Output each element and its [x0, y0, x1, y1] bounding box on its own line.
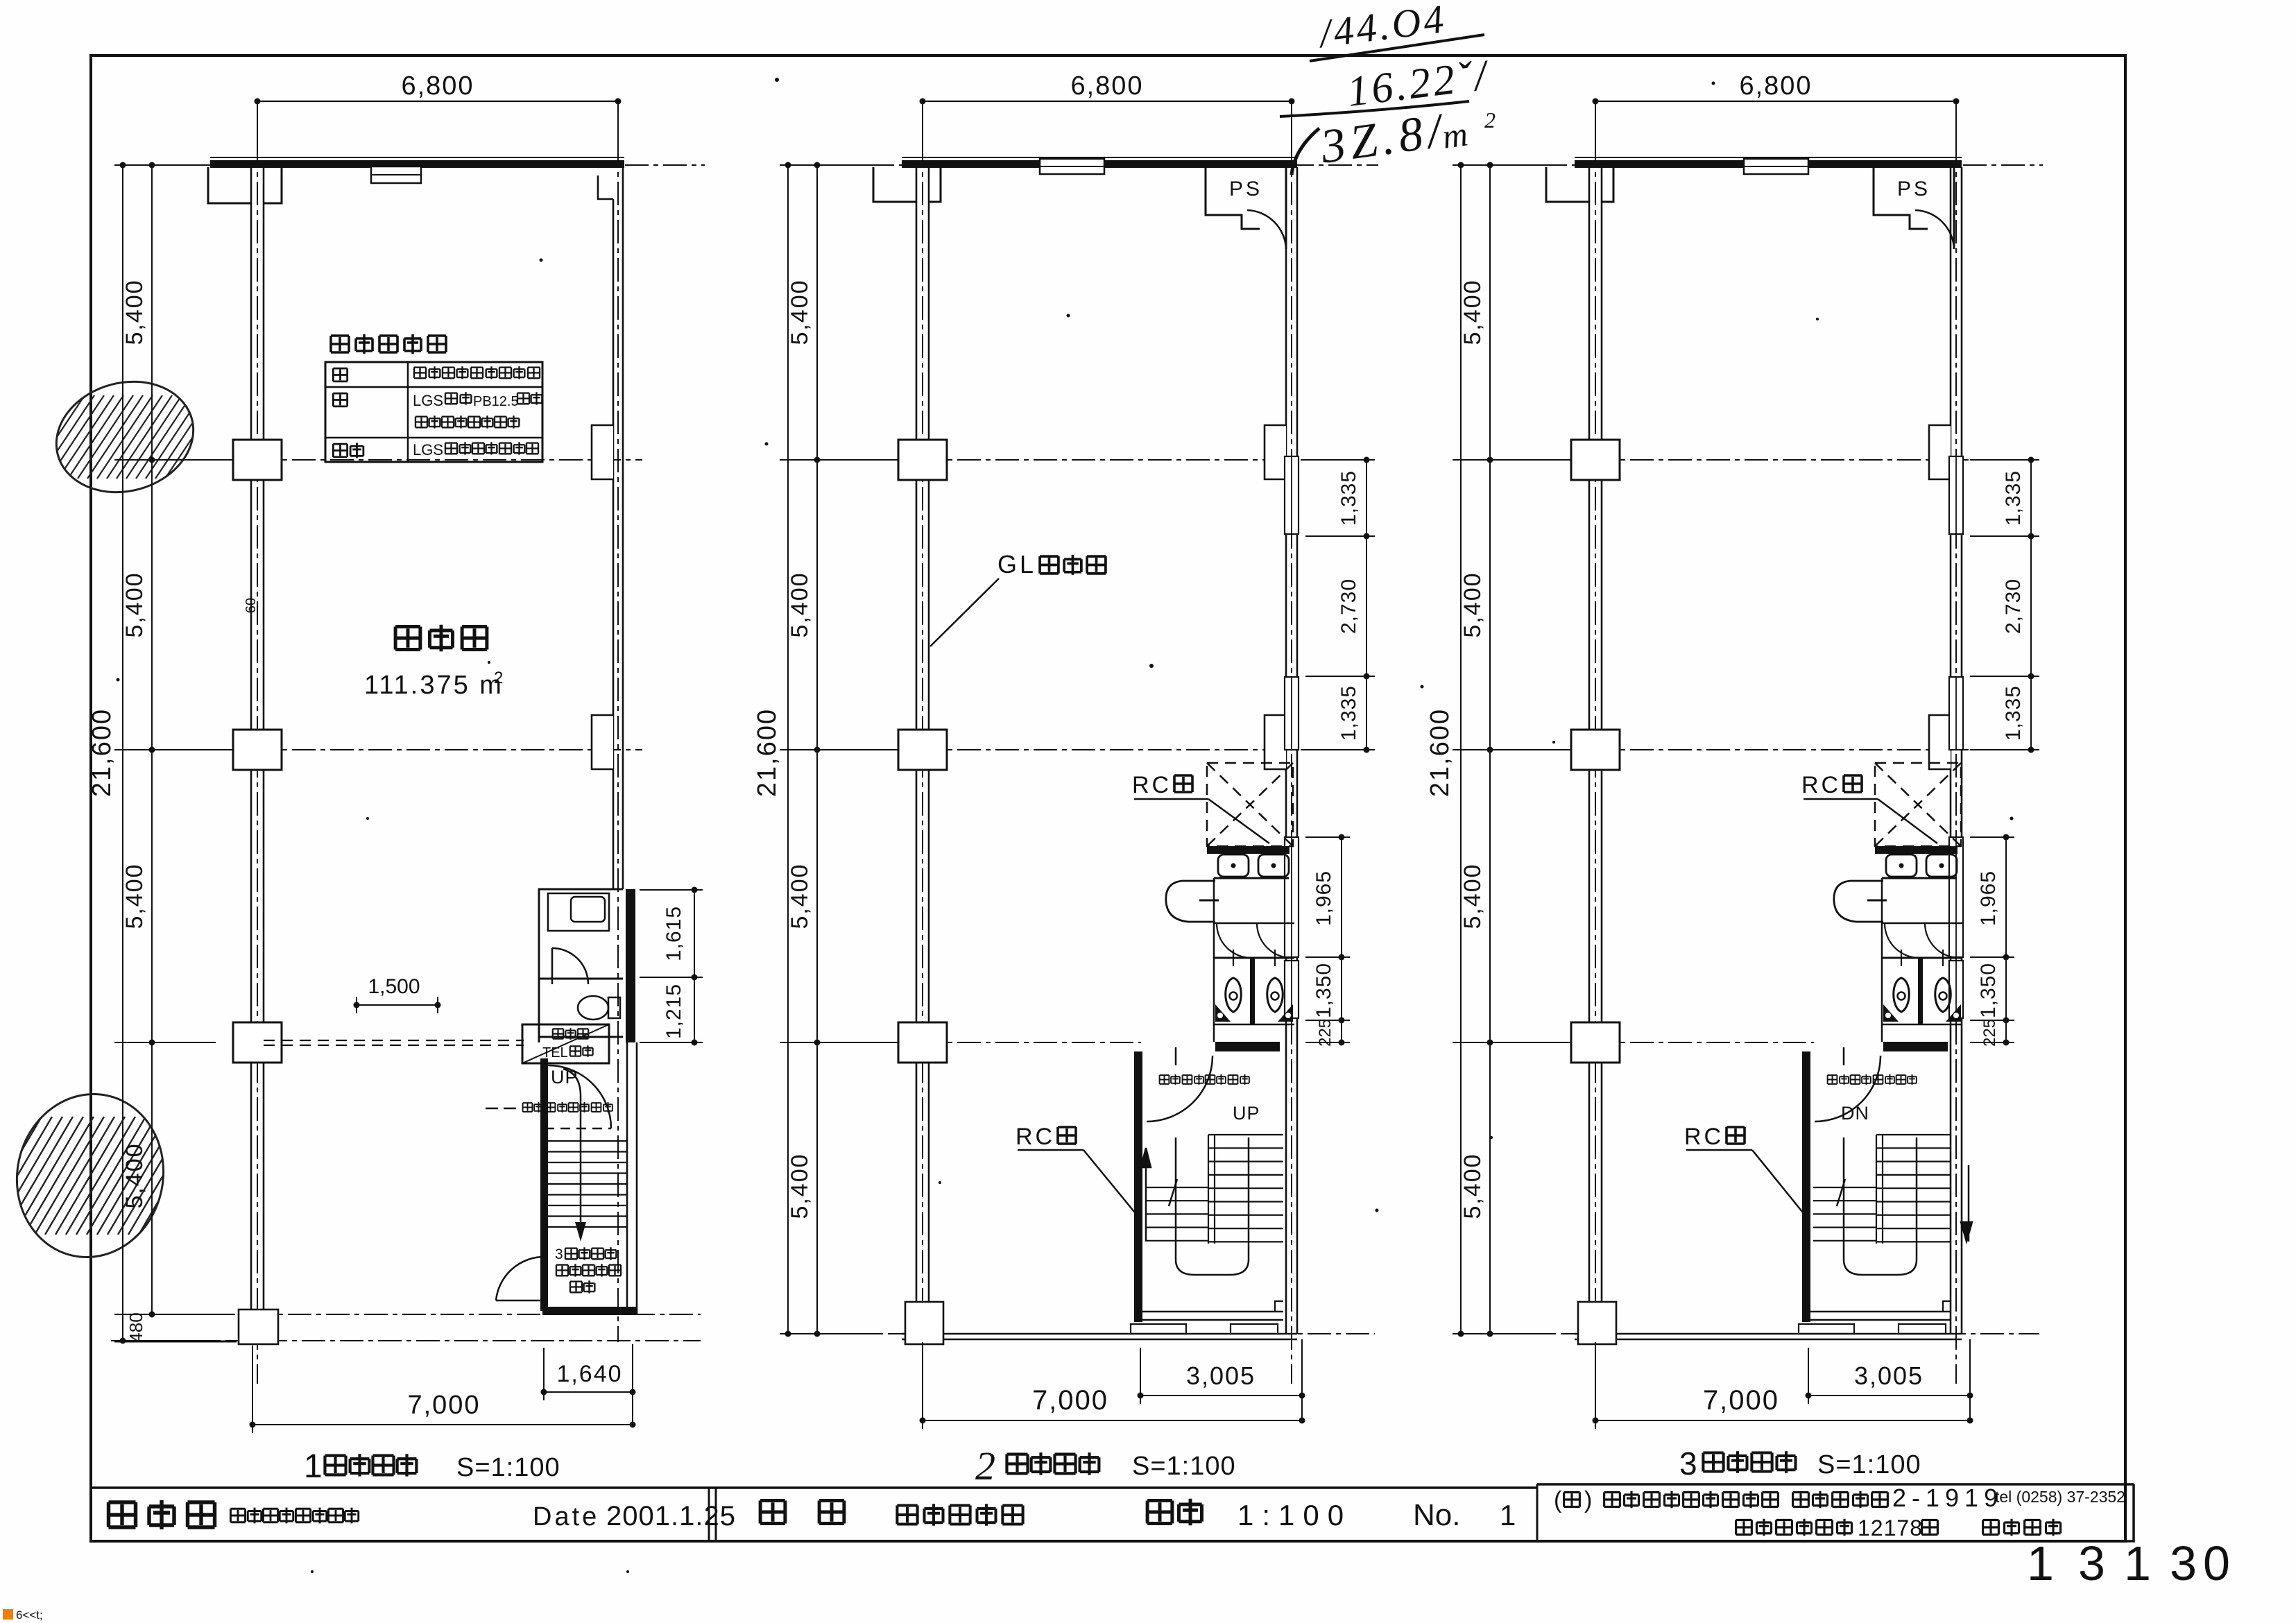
svg-text:21,600: 21,600 — [1425, 708, 1455, 797]
svg-text:TEL: TEL — [542, 1045, 568, 1060]
svg-text:21,600: 21,600 — [753, 708, 782, 797]
svg-text:6<<t;: 6<<t; — [16, 1608, 43, 1622]
svg-text:1,335: 1,335 — [1337, 685, 1360, 741]
svg-text:1: 1 — [304, 1448, 323, 1485]
svg-text:5,400: 5,400 — [787, 863, 813, 929]
svg-text:2: 2 — [975, 1443, 995, 1488]
svg-text:2: 2 — [494, 669, 503, 687]
svg-text:LGS: LGS — [413, 392, 443, 409]
svg-text:5,400: 5,400 — [787, 279, 813, 345]
svg-text:1,335: 1,335 — [1337, 470, 1360, 526]
svg-text:GL: GL — [997, 550, 1036, 578]
svg-text:): ) — [1584, 1487, 1592, 1513]
svg-text:PS: PS — [1897, 178, 1930, 200]
svg-text:2-1919: 2-1919 — [1892, 1484, 2003, 1512]
svg-text:1,350: 1,350 — [1977, 963, 2000, 1018]
svg-text:1,350: 1,350 — [1312, 963, 1335, 1018]
svg-text:3,005: 3,005 — [1186, 1362, 1256, 1390]
svg-text:RC: RC — [1684, 1124, 1724, 1150]
svg-text:225: 225 — [1316, 1019, 1335, 1047]
svg-text:UP: UP — [1233, 1103, 1260, 1124]
svg-text:S=1:100: S=1:100 — [1132, 1452, 1236, 1481]
svg-text:12178: 12178 — [1858, 1515, 1923, 1540]
svg-text:No.: No. — [1413, 1498, 1460, 1532]
svg-text:1,640: 1,640 — [556, 1361, 622, 1387]
svg-text:5,400: 5,400 — [787, 572, 813, 637]
svg-text:1,215: 1,215 — [662, 984, 685, 1039]
svg-text:(: ( — [1554, 1487, 1562, 1513]
svg-text:1,965: 1,965 — [1977, 870, 2000, 926]
svg-text:1,615: 1,615 — [662, 906, 685, 961]
svg-text:111.375 m: 111.375 m — [364, 671, 504, 700]
svg-text:7,000: 7,000 — [1703, 1385, 1779, 1416]
svg-text:S=1:100: S=1:100 — [1817, 1450, 1921, 1479]
svg-text:1: 1 — [1500, 1499, 1516, 1531]
svg-text:480: 480 — [126, 1312, 146, 1342]
svg-text:1: 1 — [2124, 1536, 2151, 1590]
svg-text:1: 1 — [2027, 1536, 2054, 1590]
svg-text:60: 60 — [243, 598, 259, 613]
svg-text:5,400: 5,400 — [1459, 1153, 1486, 1219]
svg-text:21,600: 21,600 — [87, 708, 117, 797]
svg-text:3: 3 — [2078, 1536, 2105, 1590]
svg-text:3: 3 — [1679, 1445, 1697, 1482]
svg-text:LGS: LGS — [413, 441, 443, 458]
svg-text:1:100: 1:100 — [1237, 1499, 1352, 1531]
svg-text:1,965: 1,965 — [1312, 870, 1335, 926]
svg-text:5,400: 5,400 — [1459, 863, 1486, 929]
svg-text:PB12.5: PB12.5 — [473, 394, 519, 409]
svg-text:0: 0 — [2203, 1536, 2230, 1590]
svg-text:PS: PS — [1229, 178, 1262, 200]
svg-text:1,500: 1,500 — [368, 975, 420, 998]
svg-text:6,800: 6,800 — [1739, 71, 1812, 101]
svg-text:5,400: 5,400 — [121, 863, 148, 929]
svg-text:2,730: 2,730 — [2002, 578, 2025, 634]
svg-text:5,400: 5,400 — [121, 279, 148, 345]
svg-text:5,400: 5,400 — [787, 1153, 813, 1219]
svg-text:1,335: 1,335 — [2002, 470, 2025, 526]
svg-text:6,800: 6,800 — [1070, 71, 1143, 101]
svg-text:Date: Date — [533, 1502, 599, 1531]
svg-text:RC: RC — [1016, 1124, 1055, 1150]
svg-text:RC: RC — [1132, 772, 1172, 798]
svg-text:2: 2 — [1484, 108, 1496, 132]
svg-text:5,400: 5,400 — [121, 572, 148, 637]
svg-text:1,335: 1,335 — [2002, 685, 2025, 741]
svg-text:7,000: 7,000 — [1032, 1385, 1108, 1416]
svg-text:2,730: 2,730 — [1337, 578, 1360, 634]
svg-text:RC: RC — [1801, 772, 1841, 798]
svg-text:3: 3 — [555, 1246, 563, 1262]
svg-text:3: 3 — [2170, 1536, 2197, 1590]
svg-text:5,400: 5,400 — [1459, 279, 1486, 345]
svg-text:225: 225 — [1980, 1019, 1999, 1047]
svg-text:5,400: 5,400 — [1459, 572, 1486, 637]
svg-text:3,005: 3,005 — [1854, 1362, 1924, 1390]
svg-text:DN: DN — [1841, 1103, 1869, 1124]
svg-text:tel (0258) 37-2352: tel (0258) 37-2352 — [1995, 1488, 2125, 1506]
svg-text:5,400: 5,400 — [121, 1142, 148, 1208]
svg-text:m: m — [1440, 114, 1471, 155]
svg-text:7,000: 7,000 — [407, 1391, 480, 1420]
svg-text:6,800: 6,800 — [401, 71, 474, 101]
svg-text:S=1:100: S=1:100 — [456, 1453, 560, 1482]
